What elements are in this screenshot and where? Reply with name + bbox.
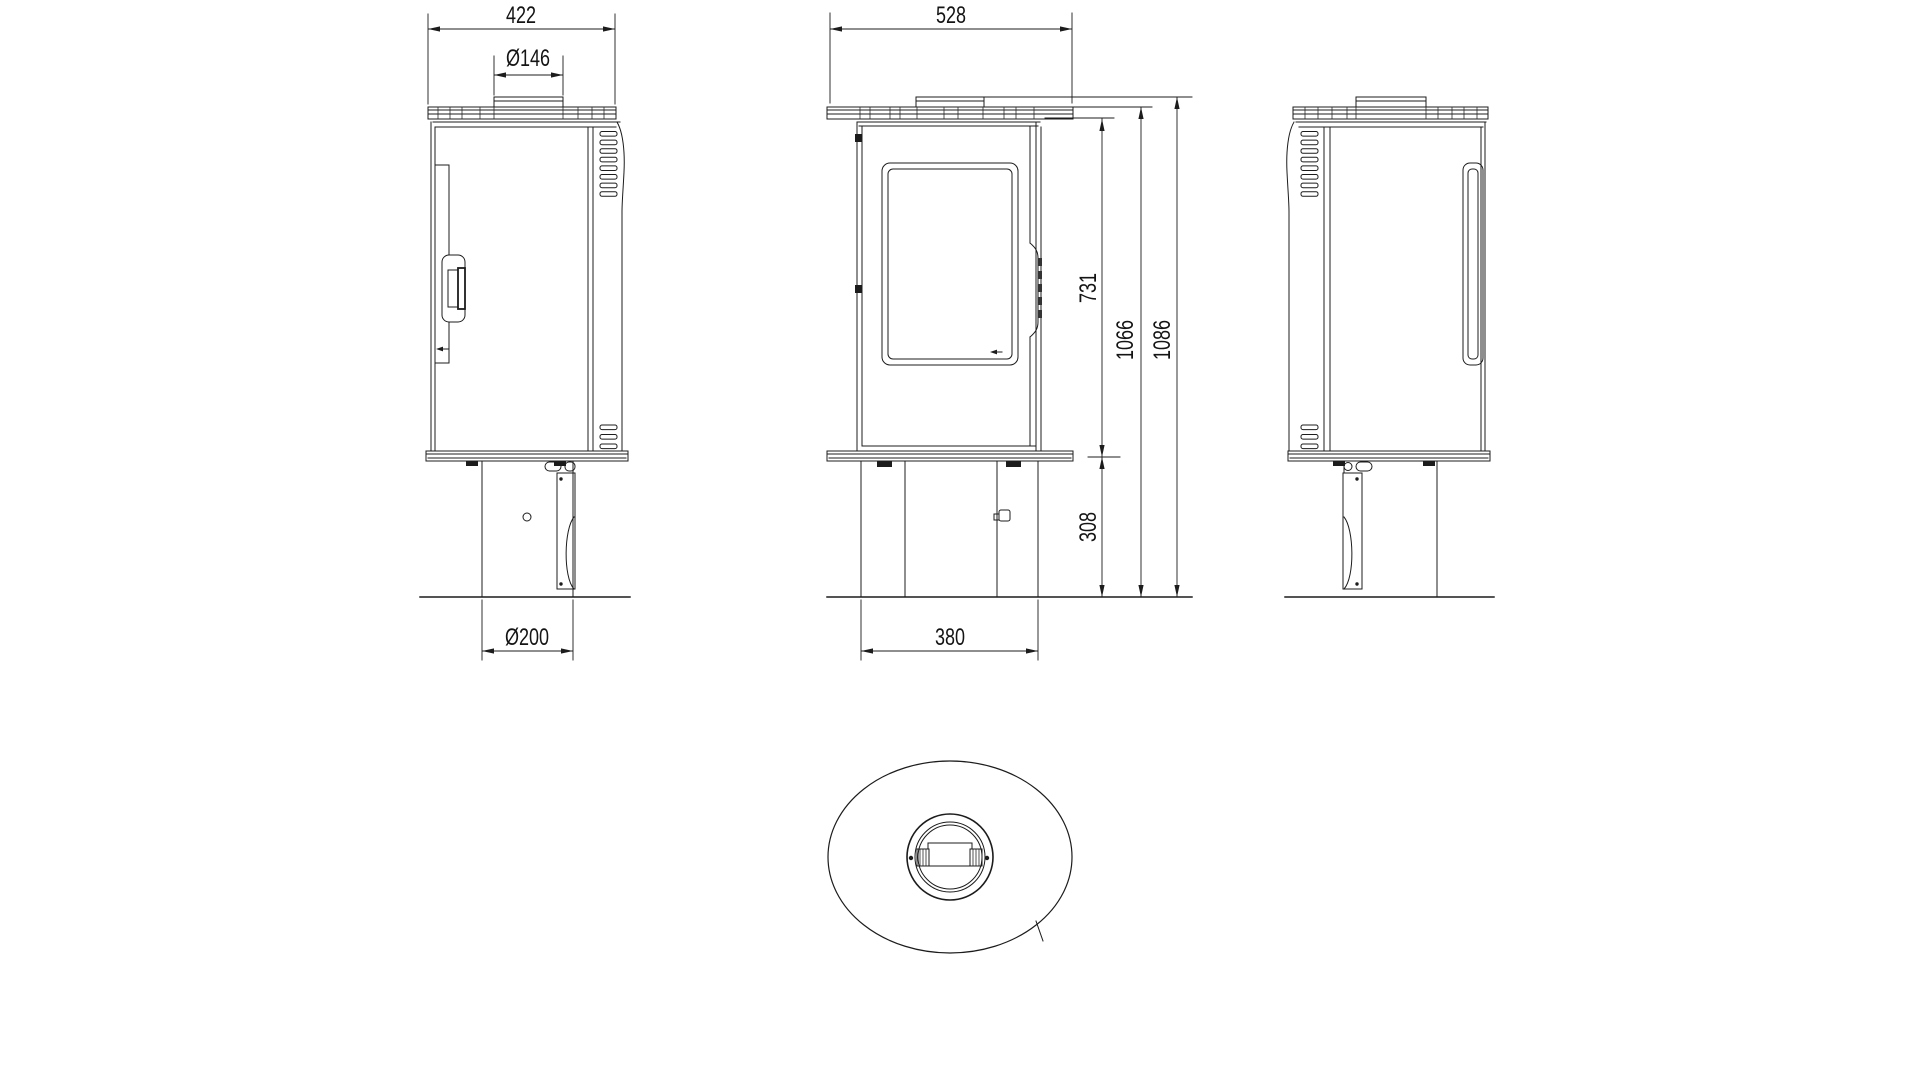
pedestal-hole (523, 513, 531, 521)
foot (1423, 461, 1435, 466)
dimension-body-height: 1066 (1113, 107, 1144, 597)
bottom-plate (1288, 451, 1490, 466)
pedestal (1343, 461, 1437, 597)
dim-label-total-height: 1086 (1150, 320, 1176, 360)
flue-damper (909, 843, 989, 866)
foot (1333, 461, 1345, 466)
flue-collar (916, 97, 984, 107)
flue-collar (494, 97, 563, 107)
stove-dimension-drawing: 422 Ø146 528 731 308 1066 1086 (0, 0, 1920, 1080)
technical-drawing-page: 422 Ø146 528 731 308 1066 1086 (0, 0, 1920, 1080)
dim-label-door-height: 731 (1076, 273, 1102, 303)
pedestal (482, 461, 575, 597)
dimension-door-height: 731 (1076, 119, 1105, 457)
door-handle (442, 255, 465, 322)
flue-middle-ring (915, 822, 985, 892)
top-plate (827, 107, 1073, 119)
vent-slots-top (1301, 132, 1318, 197)
top-plate (428, 107, 616, 119)
flue-inner-ring (918, 825, 982, 889)
dimension-front-width: 528 (830, 3, 1072, 103)
door-open-arrow (990, 350, 1002, 355)
dim-label-flue-diameter: Ø146 (506, 46, 550, 72)
dim-label-pedestal-width: 380 (935, 625, 965, 651)
vent-slots-bottom (600, 425, 617, 449)
stove-body (431, 122, 624, 450)
side-view-right (1285, 97, 1494, 597)
dim-label-front-width: 528 (936, 3, 966, 29)
foot (877, 461, 892, 467)
dim-label-body-height: 1066 (1113, 320, 1139, 360)
vent-slots-bottom (1301, 425, 1318, 449)
bottom-plate (426, 451, 628, 466)
stove-door (855, 122, 1041, 450)
door-hinge (855, 134, 862, 142)
dim-label-pedestal-height: 308 (1076, 512, 1102, 542)
bottom-plate (827, 451, 1073, 467)
dim-label-base-diameter: Ø200 (505, 625, 549, 651)
top-view (828, 761, 1072, 953)
dim-label-side-width: 422 (506, 3, 536, 29)
dimension-total-height: 1086 (1150, 97, 1180, 597)
door-hinge (855, 285, 862, 293)
top-plate (1293, 107, 1488, 119)
air-control-knob (999, 510, 1010, 521)
top-plate-outline (828, 761, 1072, 953)
door-glass-edge (1463, 163, 1483, 365)
dimension-flue-diameter: Ø146 (494, 46, 563, 95)
dimension-pedestal-width: 380 (861, 600, 1038, 660)
stove-body (1287, 122, 1486, 450)
door-open-arrow (436, 347, 448, 352)
foot (1006, 461, 1021, 467)
dimension-pedestal-height: 308 (1076, 457, 1105, 597)
foot (466, 461, 478, 466)
side-view-left (420, 97, 630, 597)
pedestal (861, 461, 1038, 597)
door-glass (882, 163, 1018, 365)
vent-slots-top (600, 132, 617, 197)
door-handle (1030, 243, 1040, 337)
flue-collar (1356, 97, 1426, 107)
dimension-base-diameter: Ø200 (482, 600, 573, 660)
leader-tick (1036, 921, 1043, 941)
